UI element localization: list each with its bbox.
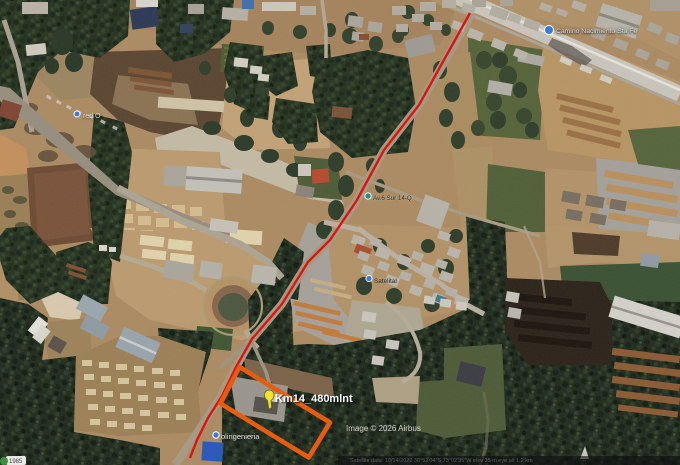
- svg-text:olingenieria: olingenieria: [221, 432, 260, 441]
- svg-text:Km14_480mlnt: Km14_480mlnt: [275, 393, 353, 405]
- svg-text:1985: 1985: [9, 459, 23, 465]
- svg-text:Satellite data: 10/14/2022 3: Satellite data: 10/14/2022 36°52'04"S 73…: [350, 458, 533, 464]
- svg-text:Image © 2026 Airbus: Image © 2026 Airbus: [346, 424, 421, 433]
- svg-text:Satelital: Satelital: [374, 278, 397, 285]
- svg-text:Camino Nacimiento Sta Fe: Camino Nacimiento Sta Fe: [556, 28, 637, 35]
- svg-text:Av.6 Sur 14-Q: Av.6 Sur 14-Q: [373, 195, 412, 202]
- svg-text:red O: red O: [83, 113, 101, 120]
